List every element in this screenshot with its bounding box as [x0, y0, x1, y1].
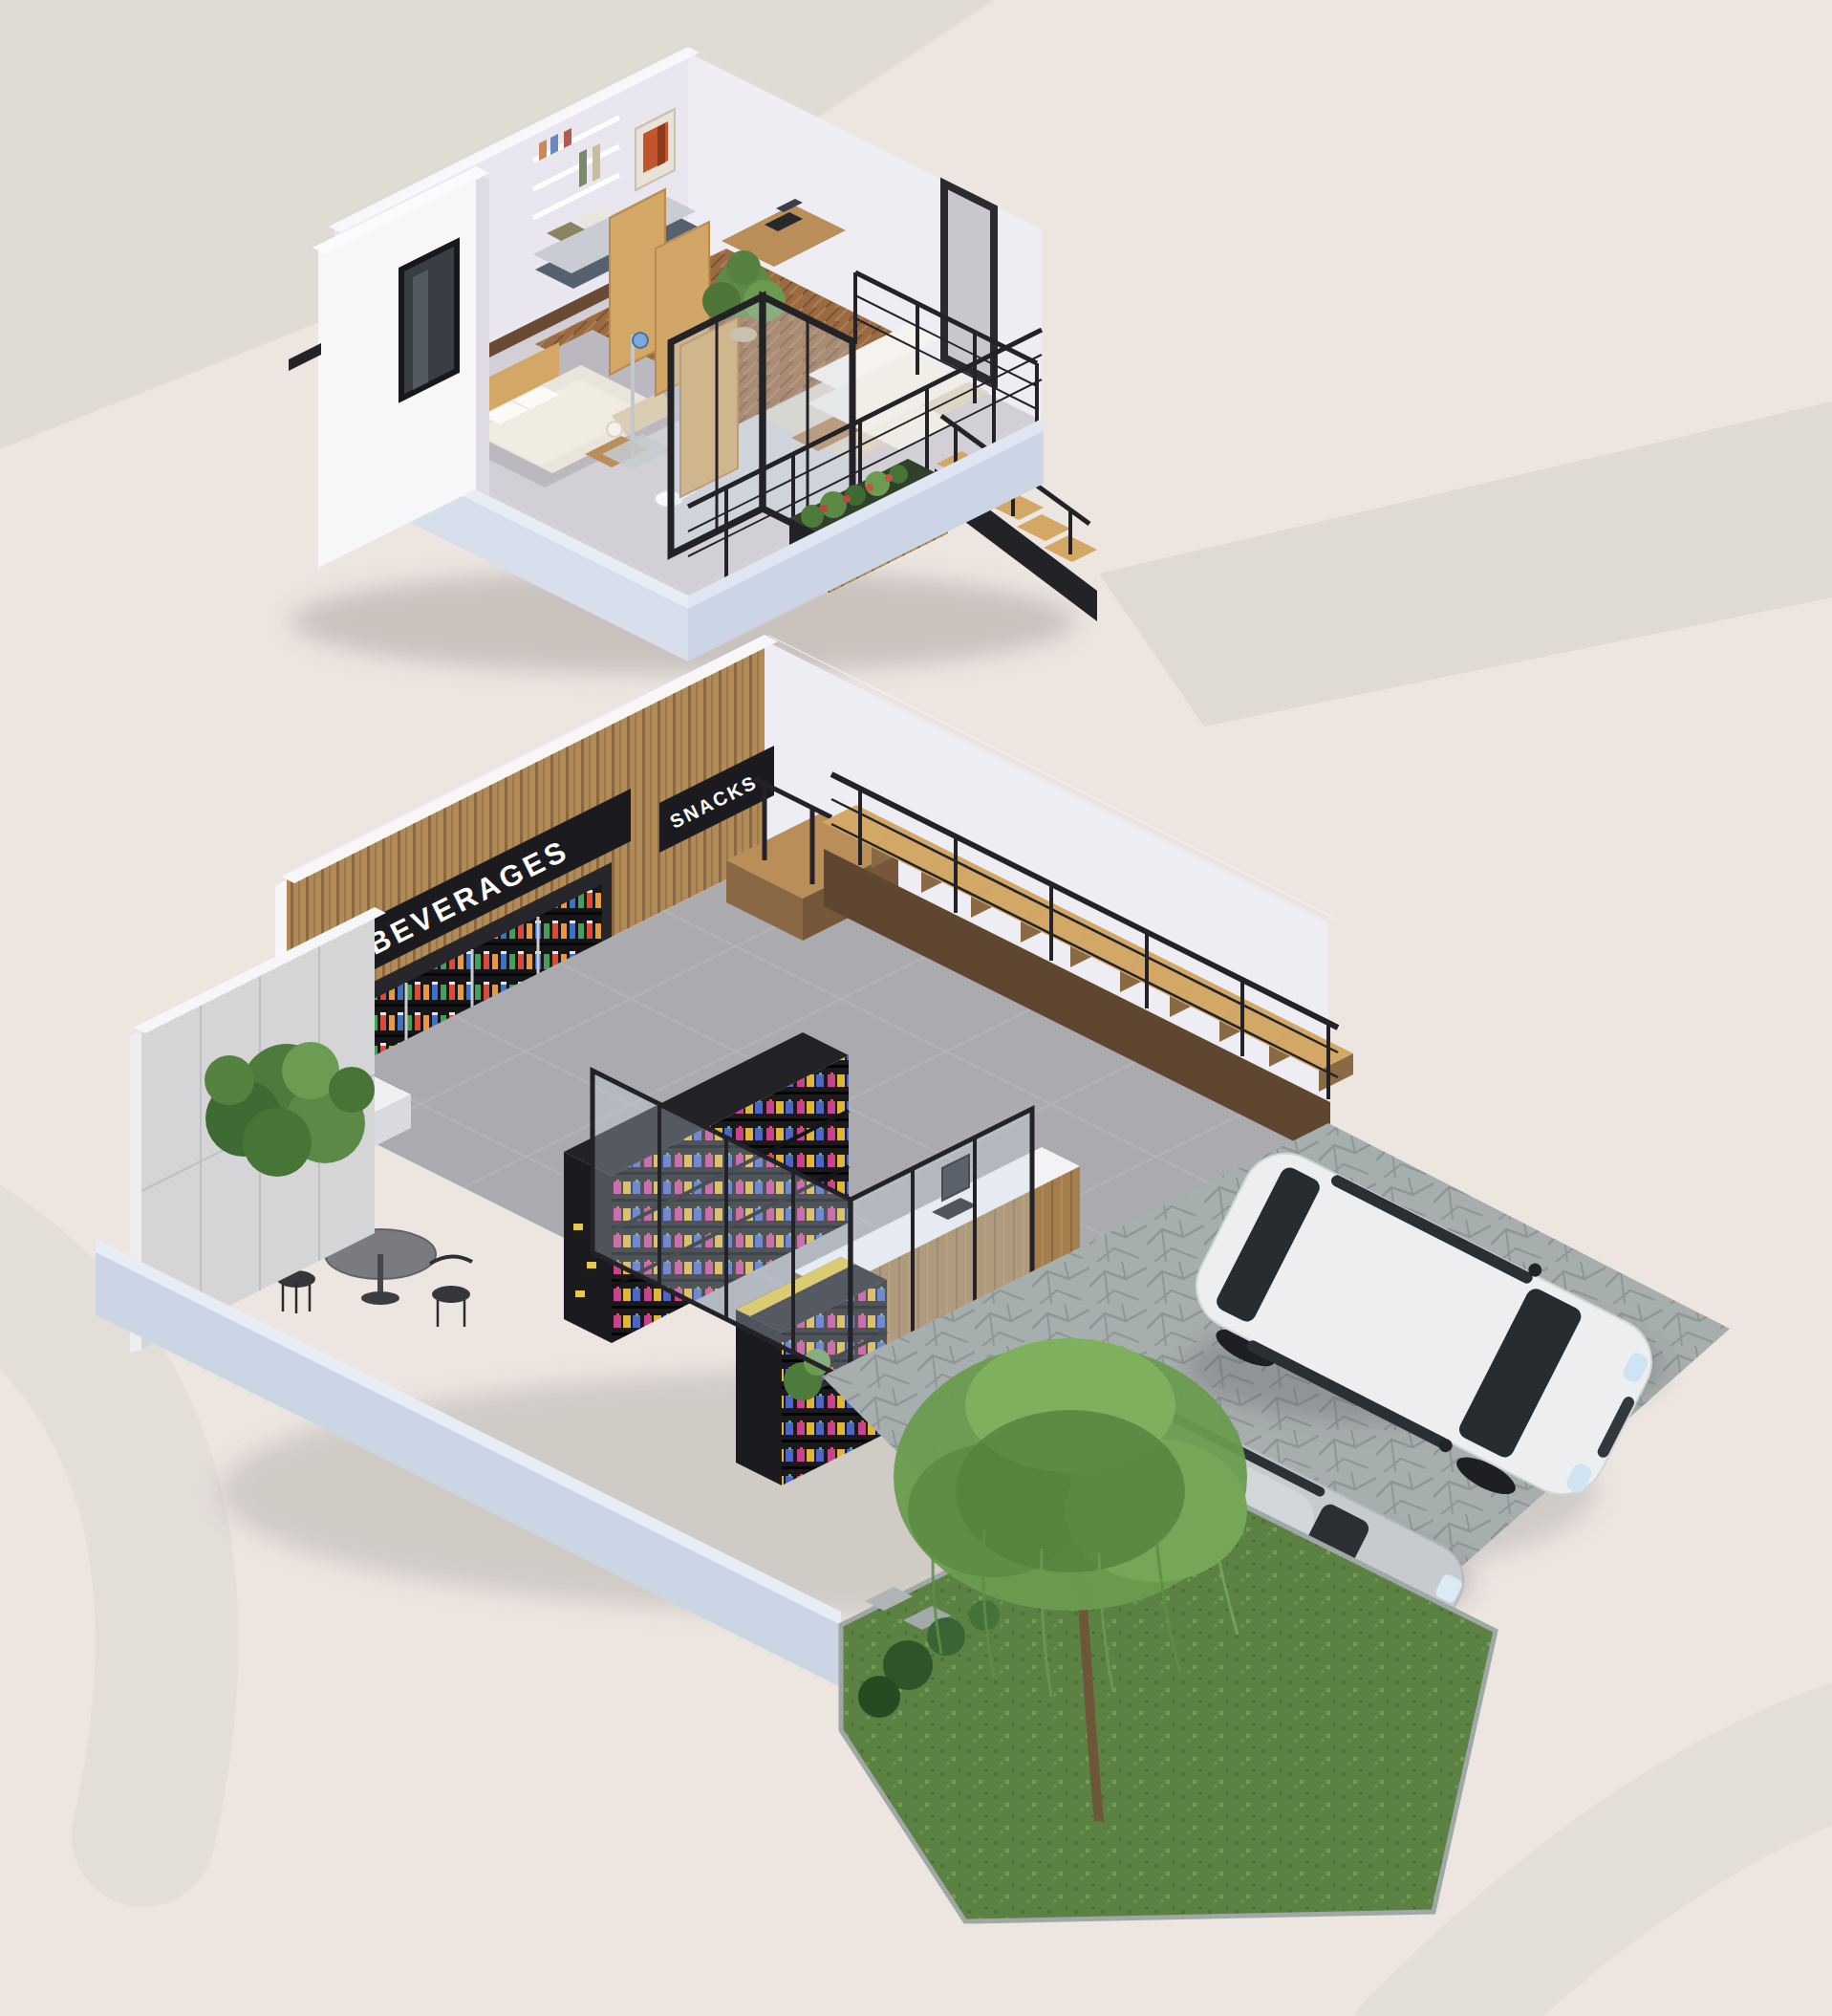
- plant-foliage: [726, 250, 761, 285]
- shelf-book: [593, 143, 600, 182]
- garden-shrub: [927, 1617, 965, 1656]
- art-accent-stripe: [657, 123, 665, 166]
- planter-flower: [820, 505, 828, 512]
- gondola-price-tag: [587, 1262, 596, 1268]
- shower-head: [633, 333, 648, 348]
- tree-canopy-inner: [956, 1410, 1185, 1572]
- planter-flower: [866, 484, 873, 491]
- planter-flower: [843, 495, 851, 503]
- planter-foliage: [865, 471, 890, 496]
- planter-flower: [885, 474, 893, 482]
- plant-foliage: [329, 1067, 375, 1113]
- garden-shrub: [858, 1676, 900, 1718]
- plant-foliage: [205, 1055, 254, 1105]
- cafe-table-base: [361, 1291, 399, 1305]
- bedside-lamp: [607, 422, 622, 437]
- mirror-reflection: [413, 270, 428, 390]
- gondola-price-tag: [573, 1224, 583, 1230]
- plant-foliage: [243, 1108, 312, 1177]
- shelf-book: [579, 149, 587, 187]
- planter-foliage: [889, 465, 908, 484]
- planter-foliage: [820, 491, 847, 518]
- gondola-price-tag: [575, 1290, 585, 1297]
- mirror-frame: [401, 242, 457, 399]
- isometric-render-canvas: BEVERAGES SNACKS: [0, 0, 1832, 2016]
- wall-return-edge: [476, 172, 489, 496]
